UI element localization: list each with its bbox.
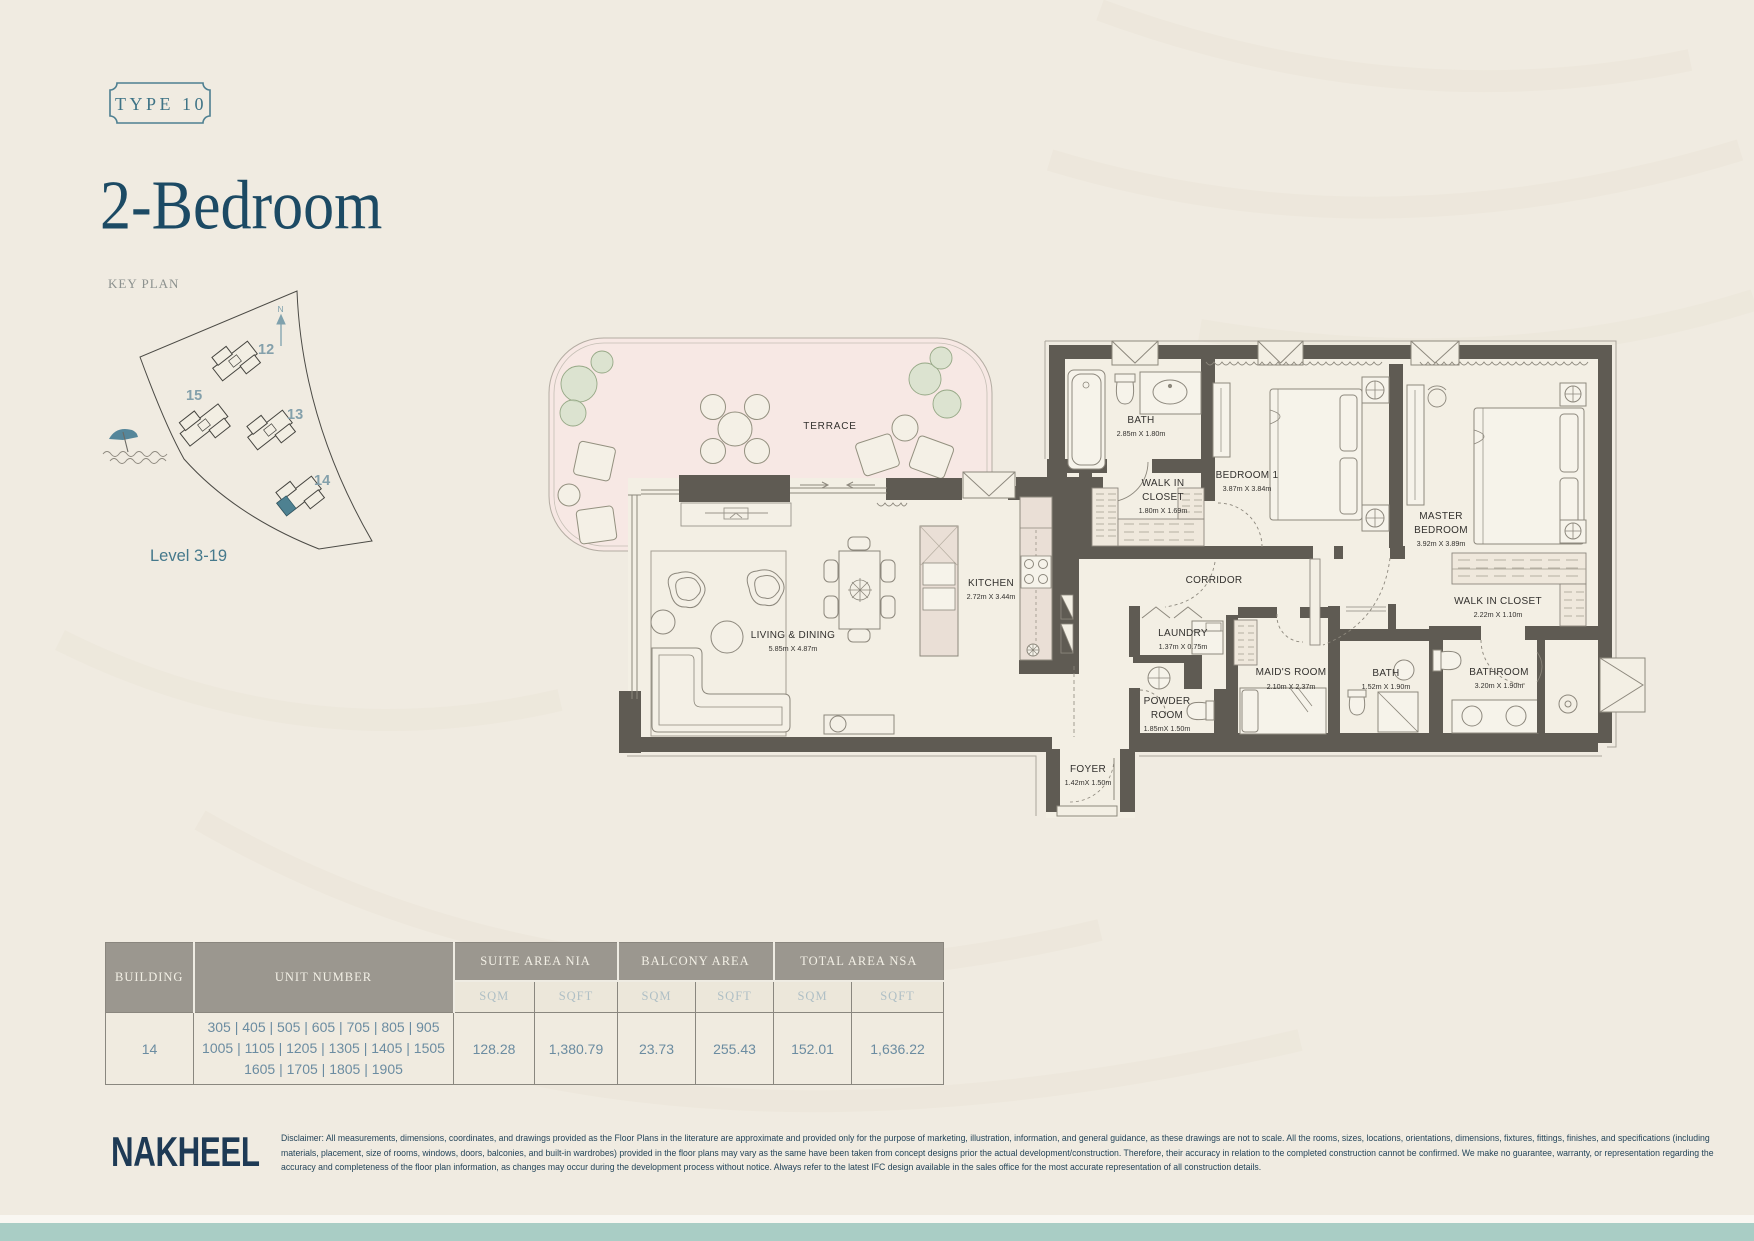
- svg-text:N: N: [278, 304, 284, 314]
- svg-text:12: 12: [258, 342, 274, 358]
- svg-text:LAUNDRY: LAUNDRY: [1158, 628, 1208, 639]
- svg-text:Level 3-19: Level 3-19: [150, 547, 227, 565]
- svg-text:BEDROOM: BEDROOM: [1414, 525, 1468, 536]
- svg-text:BATH: BATH: [1127, 415, 1154, 426]
- svg-text:BEDROOM 1: BEDROOM 1: [1216, 470, 1279, 481]
- svg-text:14: 14: [314, 473, 330, 489]
- svg-text:MAID'S ROOM: MAID'S ROOM: [1256, 667, 1327, 678]
- svg-text:2.72m X 3.44m: 2.72m X 3.44m: [967, 592, 1016, 601]
- svg-text:1.85mX 1.50m: 1.85mX 1.50m: [1144, 724, 1191, 733]
- svg-text:1.80m X 1.69m: 1.80m X 1.69m: [1139, 506, 1188, 515]
- svg-text:BATH: BATH: [1372, 668, 1399, 679]
- svg-text:KITCHEN: KITCHEN: [968, 578, 1014, 589]
- svg-text:1.52m X 1.90m: 1.52m X 1.90m: [1362, 682, 1411, 691]
- svg-text:FOYER: FOYER: [1070, 764, 1106, 775]
- svg-text:2.22m X 1.10m: 2.22m X 1.10m: [1474, 610, 1523, 619]
- svg-text:LIVING & DINING: LIVING & DINING: [751, 630, 836, 641]
- svg-text:WALK IN CLOSET: WALK IN CLOSET: [1454, 596, 1542, 607]
- svg-text:WALK IN: WALK IN: [1142, 478, 1185, 489]
- svg-text:CORRIDOR: CORRIDOR: [1186, 575, 1243, 586]
- svg-text:BATHROOM: BATHROOM: [1469, 667, 1528, 678]
- svg-text:MASTER: MASTER: [1419, 511, 1462, 522]
- svg-text:3.20m X 1.90m: 3.20m X 1.90m: [1475, 681, 1524, 690]
- svg-text:3.92m X 3.89m: 3.92m X 3.89m: [1417, 539, 1466, 548]
- svg-text:TYPE 10: TYPE 10: [115, 94, 207, 114]
- svg-text:1.37m X 0.75m: 1.37m X 0.75m: [1159, 642, 1208, 651]
- svg-text:1.42mX 1.50m: 1.42mX 1.50m: [1065, 778, 1112, 787]
- svg-text:5.85m X 4.87m: 5.85m X 4.87m: [769, 644, 818, 653]
- svg-text:3.87m X 3.84m: 3.87m X 3.84m: [1223, 484, 1272, 493]
- svg-text:CLOSET: CLOSET: [1142, 492, 1184, 503]
- svg-text:POWDER: POWDER: [1144, 696, 1191, 707]
- svg-text:13: 13: [287, 407, 303, 423]
- svg-text:2.85m X 1.80m: 2.85m X 1.80m: [1117, 429, 1166, 438]
- svg-text:TERRACE: TERRACE: [803, 421, 856, 432]
- svg-text:ROOM: ROOM: [1151, 710, 1183, 721]
- svg-text:2.10m X 2.37m: 2.10m X 2.37m: [1267, 682, 1316, 691]
- svg-text:15: 15: [186, 388, 202, 404]
